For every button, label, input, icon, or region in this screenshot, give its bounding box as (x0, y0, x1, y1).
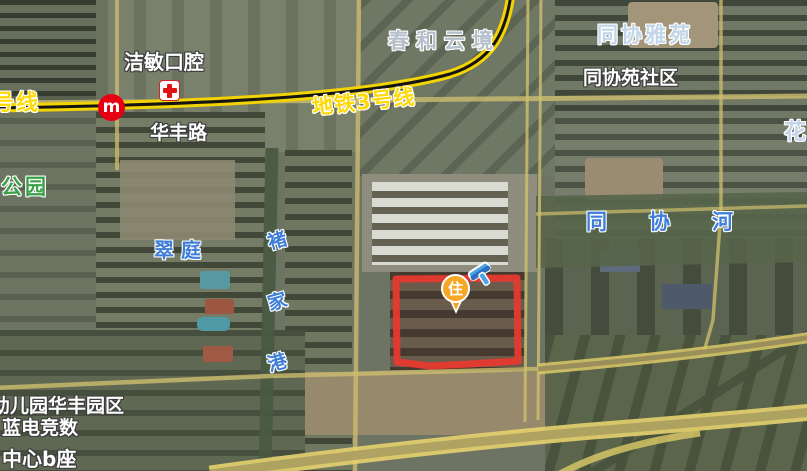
water-label-char: 家 (266, 291, 290, 315)
marker-head: 住 (441, 274, 470, 303)
poi-label-cuiting[interactable]: 翠庭 (154, 240, 208, 260)
water-label-char: 褚 (266, 230, 290, 254)
poi-label-tongxieyuan-community[interactable]: 同协苑社区 (583, 69, 678, 88)
water-label-char: 港 (266, 352, 290, 376)
poi-label-jiemin-dental[interactable]: 洁敏口腔 (124, 52, 204, 72)
water-label-char: 协 (649, 212, 670, 233)
hospital-cross-icon (159, 80, 180, 101)
poi-label-center-b[interactable]: 中心b座 (2, 449, 76, 469)
metro-station-icon[interactable]: m (98, 94, 125, 121)
poi-label-landian-esports[interactable]: 蓝电竞数 (2, 419, 78, 438)
metro-logo-letter: m (103, 99, 121, 116)
poi-label-park[interactable]: 公园 (1, 177, 49, 198)
water-label-tongxie-river: 同 协 河 (586, 212, 733, 233)
water-label-char: 同 (586, 212, 607, 233)
poi-label-hua-partial[interactable]: 花 (784, 122, 806, 144)
road-label-line-partial: 号线 (0, 93, 40, 115)
road-label-huafeng: 华丰路 (150, 124, 207, 143)
residential-parcel-marker[interactable]: 住 (441, 274, 472, 318)
poi-label-kindergarten[interactable]: 幼儿园华丰园区 (0, 397, 124, 416)
poi-label-chunhe-yunjing[interactable]: 春和云境 (388, 31, 500, 52)
poi-label-tongxie-yayuan[interactable]: 同协雅苑 (597, 25, 693, 46)
marker-label: 住 (448, 278, 463, 299)
water-label-chujiagang: 褚 家 港 (268, 232, 287, 373)
satellite-map-canvas[interactable]: 号线 地铁3号线 华丰路 洁敏口腔 春和云境 同协雅苑 同协苑社区 花 公园 翠… (0, 0, 807, 471)
water-label-char: 河 (712, 212, 733, 233)
